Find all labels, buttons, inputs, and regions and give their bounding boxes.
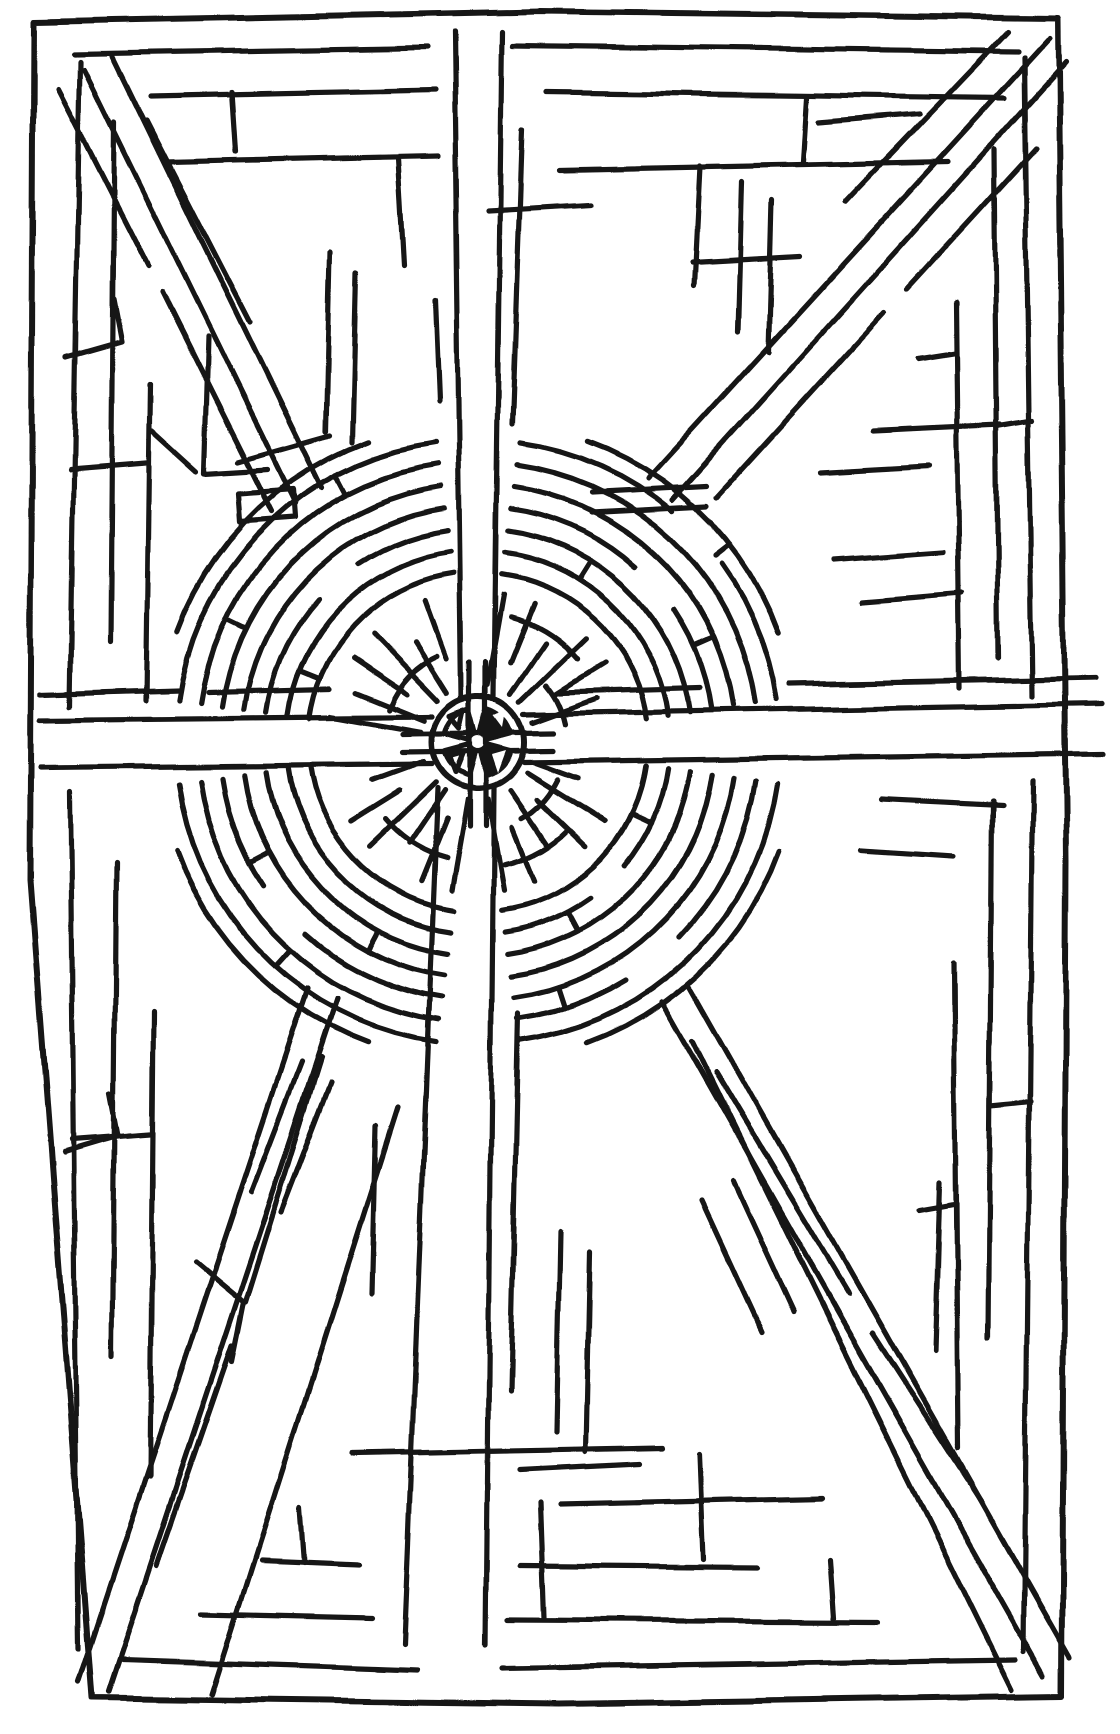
maze-wall bbox=[692, 1040, 1012, 1690]
maze-spoke bbox=[694, 637, 714, 646]
inner-border-left-lower bbox=[70, 792, 78, 1648]
diagonal-br-wall bbox=[688, 984, 1070, 1658]
diagonal-tl-wall bbox=[84, 70, 296, 504]
maze-wall bbox=[560, 162, 948, 170]
inner-border-top-right bbox=[512, 46, 1018, 52]
maze-wall bbox=[862, 594, 962, 602]
maze-wall bbox=[40, 690, 180, 694]
maze-wall bbox=[818, 114, 920, 122]
maze-wall bbox=[152, 432, 196, 472]
maze-wall bbox=[830, 1560, 834, 1618]
diagonal-tl-wall bbox=[112, 56, 322, 488]
maze-wall bbox=[988, 802, 992, 1338]
west-corridor-wall bbox=[40, 764, 432, 768]
maze-wall bbox=[768, 202, 772, 352]
maze-wall bbox=[520, 1566, 758, 1568]
maze-wall bbox=[692, 256, 800, 262]
maze-drawing bbox=[0, 0, 1120, 1734]
inner-border-top-left bbox=[74, 48, 428, 54]
maze-wall bbox=[300, 1508, 304, 1562]
east-corridor-wall bbox=[524, 704, 1102, 714]
north-corridor-wall bbox=[494, 32, 502, 696]
maze-spoke bbox=[558, 987, 565, 1008]
maze-spoke bbox=[351, 791, 400, 822]
maze-spoke bbox=[533, 762, 578, 779]
north-corridor-wall bbox=[454, 32, 462, 696]
maze-ring-arc bbox=[177, 851, 368, 1042]
maze-ring-arc bbox=[679, 781, 755, 937]
maze-page bbox=[0, 0, 1120, 1734]
maze-wall bbox=[70, 464, 146, 470]
maze-spoke bbox=[580, 561, 592, 580]
hub-triangle bbox=[450, 710, 464, 728]
maze-wall bbox=[802, 98, 806, 162]
maze-wall bbox=[326, 252, 330, 432]
maze-wall bbox=[790, 678, 1096, 684]
maze-spoke bbox=[367, 931, 377, 950]
south-corridor-wall bbox=[404, 788, 438, 1644]
maze-wall bbox=[820, 466, 930, 472]
maze-wall bbox=[150, 90, 436, 96]
maze-wall bbox=[262, 1560, 358, 1564]
maze-spoke bbox=[510, 603, 534, 662]
east-corridor-wall bbox=[524, 754, 1102, 762]
maze-wall bbox=[508, 1620, 878, 1622]
maze-wall bbox=[162, 292, 272, 512]
maze-wall bbox=[882, 800, 1002, 806]
maze-wall bbox=[556, 1232, 560, 1432]
maze-wall bbox=[834, 552, 944, 560]
maze-wall bbox=[560, 688, 700, 692]
maze-spoke bbox=[300, 670, 320, 678]
maze-wall bbox=[540, 1502, 544, 1618]
maze-spoke bbox=[336, 475, 346, 495]
maze-wall bbox=[546, 92, 1005, 98]
maze-spoke bbox=[527, 773, 605, 822]
maze-wall bbox=[202, 1614, 372, 1618]
maze-wall bbox=[994, 150, 998, 658]
diagonal-bl-wall bbox=[108, 998, 338, 1692]
maze-wall bbox=[150, 1012, 154, 1476]
maze-wall bbox=[694, 166, 700, 286]
maze-spoke bbox=[250, 853, 269, 863]
maze-wall bbox=[156, 1346, 232, 1566]
maze-spoke bbox=[632, 814, 652, 823]
hub-wedge bbox=[480, 709, 511, 740]
inner-border-bottom-right bbox=[502, 1660, 1016, 1668]
maze-wall bbox=[592, 506, 706, 512]
maze-wall bbox=[990, 1102, 1030, 1106]
maze-wall bbox=[372, 1126, 376, 1294]
maze-ring-arc bbox=[587, 851, 778, 1042]
inner-border-right-lower bbox=[1024, 782, 1032, 1652]
maze-wall bbox=[510, 1014, 518, 1392]
inner-border-bottom-left bbox=[122, 1660, 418, 1670]
maze-wall bbox=[146, 384, 150, 700]
inner-border-left-upper bbox=[70, 62, 80, 706]
hub-circle bbox=[432, 696, 524, 788]
maze-ring-arc bbox=[587, 441, 778, 632]
maze-wall bbox=[700, 1454, 704, 1560]
maze-spoke bbox=[427, 601, 448, 658]
maze-wall bbox=[232, 92, 236, 152]
maze-wall bbox=[862, 850, 952, 856]
maze-wall bbox=[560, 1498, 822, 1504]
maze-wall bbox=[488, 204, 592, 210]
maze-wall bbox=[872, 424, 1000, 430]
west-corridor-wall bbox=[40, 716, 432, 720]
maze-spoke bbox=[716, 545, 730, 556]
maze-wall bbox=[352, 1448, 662, 1454]
south-corridor-wall bbox=[486, 788, 494, 1644]
maze-spoke bbox=[276, 950, 291, 966]
maze-wall bbox=[586, 1252, 590, 1452]
diagonal-tr-wall bbox=[648, 38, 1050, 478]
maze-wall bbox=[436, 300, 440, 402]
maze-ring-arc bbox=[358, 530, 448, 565]
diagonal-tr-wall bbox=[672, 62, 1066, 500]
maze-wall bbox=[352, 272, 356, 442]
maze-ink-layer bbox=[30, 12, 1102, 1704]
maze-wall bbox=[956, 302, 960, 688]
maze-wall bbox=[918, 352, 956, 358]
maze-wall bbox=[872, 1332, 982, 1502]
maze-spoke bbox=[568, 912, 578, 932]
maze-wall bbox=[398, 158, 404, 266]
maze-wall bbox=[520, 1464, 640, 1470]
maze-spoke bbox=[226, 619, 246, 629]
maze-wall bbox=[512, 130, 522, 424]
maze-wall bbox=[238, 436, 330, 462]
maze-spoke bbox=[452, 799, 468, 890]
